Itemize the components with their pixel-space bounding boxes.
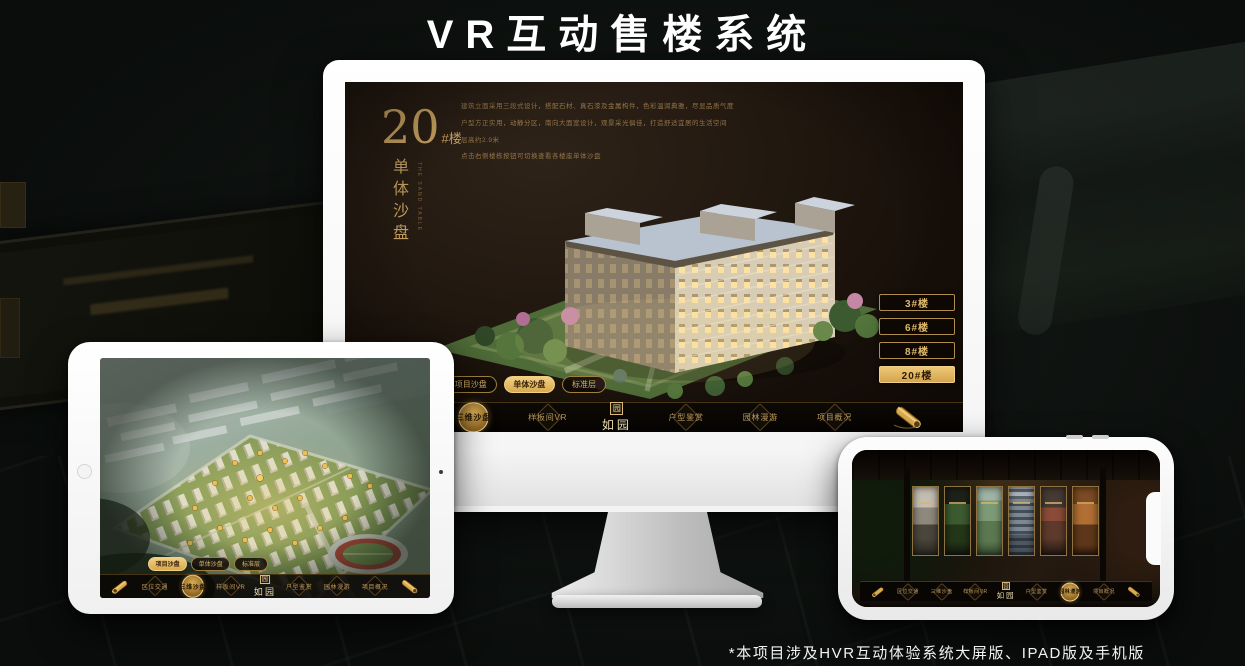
- panel-caption-mark: [1077, 502, 1095, 504]
- ipad-navbar: 区位交通 三维沙盘 样板间VR 园如园 户型鉴赏 园林漫游 项目概况: [100, 574, 430, 598]
- plaque-title-glow: [90, 287, 229, 315]
- background-river-shape: [1016, 164, 1076, 337]
- brand-seal-icon: 园: [610, 402, 623, 415]
- panel-caption-mark: [981, 502, 999, 504]
- brand-seal-icon: 园: [1002, 582, 1010, 590]
- background-gold-fragment: [0, 298, 20, 358]
- nav-item-label: 样板间VR: [963, 588, 987, 595]
- panel-caption-mark: [949, 502, 967, 504]
- nav-item-3d-sandtable[interactable]: 三维沙盘: [453, 406, 493, 428]
- panel-caption-mark: [917, 502, 935, 504]
- monitor-tab-bar: 项目沙盘 单体沙盘 标准层: [445, 376, 606, 393]
- floor-button-6[interactable]: 6#楼: [879, 318, 955, 335]
- ipad-home-button[interactable]: [77, 464, 92, 479]
- floor-button-20[interactable]: 20#楼: [879, 366, 955, 383]
- tab-standard-floor[interactable]: 标准层: [562, 376, 606, 393]
- scene-gallery: [912, 486, 1099, 556]
- nav-item-housetypes[interactable]: 户型鉴赏: [666, 406, 706, 428]
- brand-logo: 园如园: [997, 582, 1016, 602]
- nav-item-3d-sandtable[interactable]: 三维沙盘: [929, 585, 954, 599]
- monitor-stand-base: [552, 595, 762, 608]
- nav-item-label: 园林漫游: [1059, 588, 1081, 595]
- nav-item-label: 三维沙盘: [456, 412, 491, 423]
- nav-item-label: 区位交通: [897, 588, 919, 595]
- building-number: 20#楼: [381, 104, 462, 150]
- building-description: 建筑立面采用三段式设计，搭配石材、真石漆及金属构件，色彩温润典雅，尽显品质气度 …: [461, 102, 806, 169]
- nav-item-label: 样板间VR: [528, 412, 567, 423]
- phone-notch: [1146, 492, 1161, 565]
- nav-item-label: 项目概况: [362, 582, 388, 591]
- phone-volume-button: [1066, 435, 1083, 439]
- nav-item-garden-tour[interactable]: 园林漫游: [740, 406, 780, 428]
- scene-panel-terrace[interactable]: [944, 486, 971, 556]
- nav-item-garden-tour[interactable]: 园林漫游: [322, 578, 352, 595]
- phone-screen: 区位交通 三维沙盘 样板间VR 园如园 户型鉴赏 园林漫游 项目概况: [852, 450, 1160, 607]
- nav-item-label: 三维沙盘: [931, 588, 953, 595]
- interior-column: [904, 468, 910, 581]
- nav-item-location[interactable]: 区位交通: [895, 585, 920, 599]
- scroll-icon[interactable]: [1125, 586, 1143, 598]
- floor-button-8[interactable]: 8#楼: [879, 342, 955, 359]
- nav-item-label: 项目概况: [817, 412, 852, 423]
- nav-item-location[interactable]: 区位交通: [140, 578, 170, 595]
- scene-panel-facade[interactable]: [1008, 486, 1035, 556]
- ipad-screen: 项目沙盘 单体沙盘 标准层 区位交通 三维沙盘 样板间VR 园如园 户型鉴赏 园…: [100, 358, 430, 598]
- vertical-title-row: 单体沙盘 THE SAND TABLE: [387, 158, 462, 288]
- plaque-text-glow: [63, 255, 254, 285]
- panel-caption-mark: [1045, 502, 1063, 504]
- brand-name: 如园: [997, 590, 1016, 601]
- nav-item-garden-tour[interactable]: 园林漫游: [1058, 585, 1083, 599]
- nav-item-label: 园林漫游: [743, 412, 778, 423]
- nav-item-label: 项目概况: [1093, 588, 1115, 595]
- phone-navbar: 区位交通 三维沙盘 样板间VR 园如园 户型鉴赏 园林漫游 项目概况: [860, 581, 1152, 601]
- building-number-suffix: #楼: [442, 131, 462, 146]
- building-number-value: 20: [381, 100, 440, 154]
- panel-caption-mark: [1013, 502, 1031, 504]
- nav-item-overview[interactable]: 项目概况: [815, 406, 855, 428]
- ipad-device: 项目沙盘 单体沙盘 标准层 区位交通 三维沙盘 样板间VR 园如园 户型鉴赏 园…: [68, 342, 454, 614]
- tab-single-sandtable[interactable]: 单体沙盘: [504, 376, 556, 393]
- footnote-text: *本项目涉及HVR互动体验系统大屏版、IPAD版及手机版: [729, 642, 1145, 663]
- ipad-camera-icon: [439, 470, 443, 474]
- nav-item-label: 户型鉴赏: [669, 412, 704, 423]
- brand-seal-icon: 园: [260, 575, 270, 585]
- tab-standard-floor[interactable]: 标准层: [234, 557, 267, 571]
- vertical-caption: THE SAND TABLE: [416, 162, 422, 288]
- building-title-block: 20#楼 单体沙盘 THE SAND TABLE: [381, 104, 462, 288]
- brand-name: 如园: [602, 416, 632, 432]
- vertical-title: 单体沙盘: [387, 158, 411, 288]
- nav-item-label: 户型鉴赏: [1026, 588, 1048, 595]
- nav-item-label: 样板间VR: [216, 582, 245, 591]
- building-3d-model[interactable]: [415, 140, 895, 412]
- interior-column: [1100, 468, 1106, 581]
- nav-item-overview[interactable]: 项目概况: [1092, 585, 1117, 599]
- tab-project-sandtable[interactable]: 项目沙盘: [148, 557, 187, 571]
- phone-volume-button: [1092, 435, 1109, 439]
- brand-name: 如园: [254, 585, 277, 598]
- nav-item-label: 园林漫游: [324, 582, 350, 591]
- nav-item-showroom-vr[interactable]: 样板间VR: [528, 406, 568, 428]
- brand-logo: 园如园: [254, 575, 277, 598]
- scroll-icon[interactable]: [889, 405, 929, 431]
- description-line: 层高约2.9米: [461, 136, 806, 146]
- monitor-stand: [545, 512, 770, 598]
- nav-item-housetypes[interactable]: 户型鉴赏: [1024, 585, 1049, 599]
- description-line: 户型方正实用，动静分区，南向大面宽设计，观景采光俱佳，打造舒适宜居的生活空间: [461, 119, 806, 129]
- scroll-icon[interactable]: [108, 579, 132, 595]
- nav-item-label: 三维沙盘: [180, 582, 206, 591]
- scroll-icon[interactable]: [398, 579, 422, 595]
- nav-item-label: 区位交通: [142, 582, 168, 591]
- nav-item-label: 户型鉴赏: [286, 582, 312, 591]
- nav-item-overview[interactable]: 项目概况: [360, 578, 390, 595]
- tab-single-sandtable[interactable]: 单体沙盘: [191, 557, 230, 571]
- ipad-tab-bar: 项目沙盘 单体沙盘 标准层: [148, 557, 268, 571]
- floor-button-3[interactable]: 3#楼: [879, 294, 955, 311]
- floor-button-group: 3#楼 6#楼 8#楼 20#楼: [879, 294, 955, 383]
- scene-panel-aerial[interactable]: [976, 486, 1003, 556]
- interior-ceiling: [852, 450, 1160, 480]
- description-line: 建筑立面采用三段式设计，搭配石材、真石漆及金属构件，色彩温润典雅，尽显品质气度: [461, 102, 806, 112]
- nav-item-housetypes[interactable]: 户型鉴赏: [284, 578, 314, 595]
- brand-logo: 园如园: [602, 402, 632, 432]
- scene-panel-courtyard[interactable]: [912, 486, 939, 556]
- scene-panel-interior[interactable]: [1072, 486, 1099, 556]
- description-line: 点击右侧楼栋按钮可切换查看各楼座单体沙盘: [461, 152, 806, 162]
- page-title: VR互动售楼系统: [0, 2, 1245, 60]
- scene-panel-garden[interactable]: [1040, 486, 1067, 556]
- background-photo-collage: [942, 41, 1245, 336]
- nav-item-showroom-vr[interactable]: 样板间VR: [963, 585, 988, 599]
- background-gold-fragment: [0, 182, 26, 228]
- nav-item-showroom-vr[interactable]: 样板间VR: [216, 578, 246, 595]
- phone-device: 区位交通 三维沙盘 样板间VR 园如园 户型鉴赏 园林漫游 项目概况: [838, 437, 1174, 620]
- scroll-icon[interactable]: [869, 586, 887, 598]
- nav-item-3d-sandtable[interactable]: 三维沙盘: [178, 578, 208, 595]
